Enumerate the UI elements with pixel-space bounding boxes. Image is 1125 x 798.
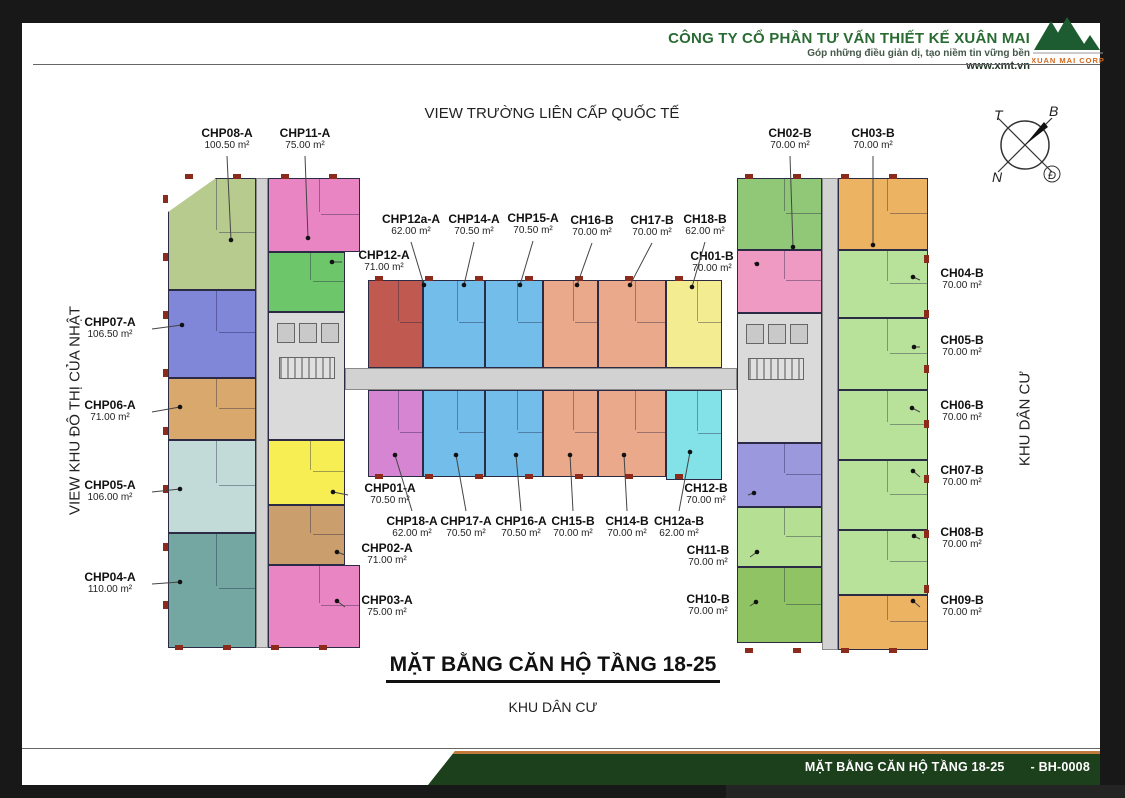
unit-CH14-B (598, 390, 666, 477)
unit-id: CHP16-A (466, 514, 576, 528)
unit-CH05-B (838, 318, 928, 390)
unit-id: CHP17-A (411, 514, 521, 528)
unit-label-CH16-B: CH16-B70.00 m² (537, 213, 647, 239)
wall-accent (841, 174, 849, 179)
unit-label-CHP05-A: CHP05-A106.00 m² (55, 478, 165, 504)
unit-area: 70.50 m² (419, 226, 529, 238)
elevator-icon (746, 324, 764, 344)
unit-CH11-B (737, 507, 822, 567)
corridor (256, 178, 268, 648)
wall-accent (271, 645, 279, 650)
unit-CHP16-A (485, 390, 543, 477)
wall-accent (675, 474, 683, 479)
wall-accent (319, 645, 327, 650)
unit-area: 75.00 m² (250, 140, 360, 152)
stair-icon (748, 358, 804, 380)
unit-CHP04-A (168, 533, 256, 648)
corridor (345, 368, 737, 390)
unit-area: 106.00 m² (55, 492, 165, 504)
wall-accent (675, 276, 683, 281)
drawing-subtitle: KHU DÂN CƯ (233, 699, 873, 715)
elevator-icon (768, 324, 786, 344)
elevator-stair-core (737, 313, 822, 443)
unit-label-CH02-B: CH02-B70.00 m² (735, 126, 845, 152)
unit-id: CHP01-A (335, 481, 445, 495)
unit-id: CH17-B (597, 213, 707, 227)
footer-divider (22, 748, 1100, 749)
unit-area: 106.50 m² (55, 329, 165, 341)
unit-CH07-B (838, 460, 928, 530)
elevator-stair-core (268, 312, 345, 440)
wall-accent (625, 474, 633, 479)
unit-id: CH03-B (818, 126, 928, 140)
unit-CH03-B (838, 178, 928, 250)
corridor (822, 178, 838, 650)
elevator-icon (299, 323, 317, 343)
wall-accent (163, 601, 168, 609)
unit-CHP14-A (423, 280, 485, 368)
unit-area: 62.00 m² (356, 226, 466, 238)
footer-bar: MẶT BẰNG CĂN HỘ TẦNG 18-25- BH-0008 (428, 751, 1100, 785)
unit-label-CHP06-A: CHP06-A71.00 m² (55, 398, 165, 424)
unit-area: 70.50 m² (335, 495, 445, 507)
stair-icon (279, 357, 335, 379)
bottom-strip (726, 785, 1125, 798)
unit-CH02-B (737, 178, 822, 250)
unit-label-CH03-B: CH03-B70.00 m² (818, 126, 928, 152)
unit-label-CHP07-A: CHP07-A106.50 m² (55, 315, 165, 341)
unit-CHP08-A (168, 178, 256, 290)
unit-id: CHP02-A (332, 541, 442, 555)
wall-accent (475, 474, 483, 479)
unit-area: 70.50 m² (466, 528, 576, 540)
unit-area: 70.00 m² (818, 140, 928, 152)
unit-id: CHP07-A (55, 315, 165, 329)
unit-area: 100.50 m² (172, 140, 282, 152)
wall-accent (525, 474, 533, 479)
unit-CHP02-A (268, 505, 345, 565)
footer-text: MẶT BẰNG CĂN HỘ TẦNG 18-25- BH-0008 (805, 760, 1090, 774)
drawing-sheet: CÔNG TY CỔ PHẦN TƯ VẤN THIẾT KẾ XUÂN MAI… (0, 0, 1125, 798)
unit-label-CHP01-A: CHP01-A70.50 m² (335, 481, 445, 507)
wall-accent (175, 645, 183, 650)
unit-id: CH16-B (537, 213, 647, 227)
unit-CH12a-B (666, 390, 722, 480)
wall-accent (163, 485, 168, 493)
wall-accent (425, 276, 433, 281)
unit-CHP17-A (423, 390, 485, 477)
unit-CHP12a-A (368, 280, 423, 368)
elevator-icon (790, 324, 808, 344)
unit-area: 70.00 m² (597, 227, 707, 239)
wall-accent (575, 474, 583, 479)
unit-CHP01-A (268, 440, 345, 505)
unit-label-CHP14-A: CHP14-A70.50 m² (419, 212, 529, 238)
wall-accent (575, 276, 583, 281)
unit-label-CH15-B: CH15-B70.00 m² (518, 514, 628, 540)
unit-label-CHP08-A: CHP08-A100.50 m² (172, 126, 282, 152)
wall-accent (185, 174, 193, 179)
unit-CH16-B (543, 280, 598, 368)
unit-CHP12-A (268, 252, 345, 312)
wall-accent (163, 369, 168, 377)
unit-id: CH02-B (735, 126, 845, 140)
wall-accent (223, 645, 231, 650)
wall-accent (163, 311, 168, 319)
drawing-title: MẶT BẰNG CĂN HỘ TẦNG 18-25 (233, 653, 873, 683)
unit-label-CH12a-B: CH12a-B62.00 m² (624, 514, 734, 540)
wall-accent (924, 530, 929, 538)
wall-accent (889, 648, 897, 653)
unit-area: 70.00 m² (518, 528, 628, 540)
unit-area: 110.00 m² (55, 584, 165, 596)
unit-label-CHP11-A: CHP11-A75.00 m² (250, 126, 360, 152)
unit-id: CH15-B (518, 514, 628, 528)
unit-area: 71.00 m² (55, 412, 165, 424)
unit-label-CHP17-A: CHP17-A70.50 m² (411, 514, 521, 540)
unit-CHP15-A (485, 280, 543, 368)
unit-area: 70.50 m² (478, 225, 588, 237)
unit-id: CH12a-B (624, 514, 734, 528)
elevator-icon (321, 323, 339, 343)
unit-label-CHP18-A: CHP18-A62.00 m² (357, 514, 467, 540)
unit-id: CH14-B (572, 514, 682, 528)
wall-accent (745, 174, 753, 179)
unit-CH15-B (543, 390, 598, 477)
unit-area: 62.00 m² (357, 528, 467, 540)
unit-id: CHP08-A (172, 126, 282, 140)
wall-accent (163, 195, 168, 203)
unit-CHP07-A (168, 290, 256, 378)
wall-accent (163, 253, 168, 261)
unit-label-CHP04-A: CHP04-A110.00 m² (55, 570, 165, 596)
unit-id: CHP14-A (419, 212, 529, 226)
unit-label-CHP12a-A: CHP12a-A62.00 m² (356, 212, 466, 238)
wall-accent (329, 174, 337, 179)
wall-accent (233, 174, 241, 179)
unit-id: CHP05-A (55, 478, 165, 492)
wall-accent (163, 543, 168, 551)
unit-CH04-B (838, 250, 928, 318)
elevator-icon (277, 323, 295, 343)
wall-accent (425, 474, 433, 479)
wall-accent (924, 255, 929, 263)
wall-accent (375, 276, 383, 281)
unit-id: CHP12a-A (356, 212, 466, 226)
unit-CH10-B (737, 567, 822, 643)
unit-area: 70.00 m² (572, 528, 682, 540)
wall-accent (793, 174, 801, 179)
unit-CH12-B (737, 443, 822, 507)
unit-CHP06-A (168, 378, 256, 440)
unit-area: 62.00 m² (624, 528, 734, 540)
unit-area: 70.00 m² (537, 227, 647, 239)
unit-label-CHP02-A: CHP02-A71.00 m² (332, 541, 442, 567)
unit-CH09-B (838, 595, 928, 650)
wall-accent (889, 174, 897, 179)
unit-CH08-B (838, 530, 928, 595)
unit-CHP03-A (268, 565, 360, 648)
unit-label-CHP15-A: CHP15-A70.50 m² (478, 211, 588, 237)
wall-accent (924, 310, 929, 318)
drawing-title-text: MẶT BẰNG CĂN HỘ TẦNG 18-25 (386, 653, 721, 683)
unit-CH17-B (598, 280, 666, 368)
unit-id: CHP18-A (357, 514, 467, 528)
wall-accent (475, 276, 483, 281)
unit-id: CHP06-A (55, 398, 165, 412)
unit-label-CH14-B: CH14-B70.00 m² (572, 514, 682, 540)
unit-id: CHP04-A (55, 570, 165, 584)
wall-accent (163, 427, 168, 435)
unit-CH06-B (838, 390, 928, 460)
wall-accent (924, 365, 929, 373)
wall-accent (281, 174, 289, 179)
unit-label-CH17-B: CH17-B70.00 m² (597, 213, 707, 239)
wall-accent (924, 585, 929, 593)
unit-id: CHP15-A (478, 211, 588, 225)
unit-id: CHP11-A (250, 126, 360, 140)
unit-CH18-B (666, 280, 722, 368)
footer-title: MẶT BẰNG CĂN HỘ TẦNG 18-25 (805, 760, 1005, 774)
wall-accent (924, 475, 929, 483)
unit-area: 71.00 m² (329, 262, 439, 274)
footer-accent-stripe (428, 751, 1100, 754)
unit-label-CHP16-A: CHP16-A70.50 m² (466, 514, 576, 540)
wall-accent (625, 276, 633, 281)
wall-accent (375, 474, 383, 479)
unit-CHP05-A (168, 440, 256, 533)
unit-CH01-B (737, 250, 822, 313)
footer-code: - BH-0008 (1031, 760, 1090, 774)
wall-accent (924, 420, 929, 428)
unit-area: 70.00 m² (735, 140, 845, 152)
unit-CHP11-A (268, 178, 360, 252)
unit-CHP18-A (368, 390, 423, 477)
wall-accent (525, 276, 533, 281)
unit-area: 70.50 m² (411, 528, 521, 540)
